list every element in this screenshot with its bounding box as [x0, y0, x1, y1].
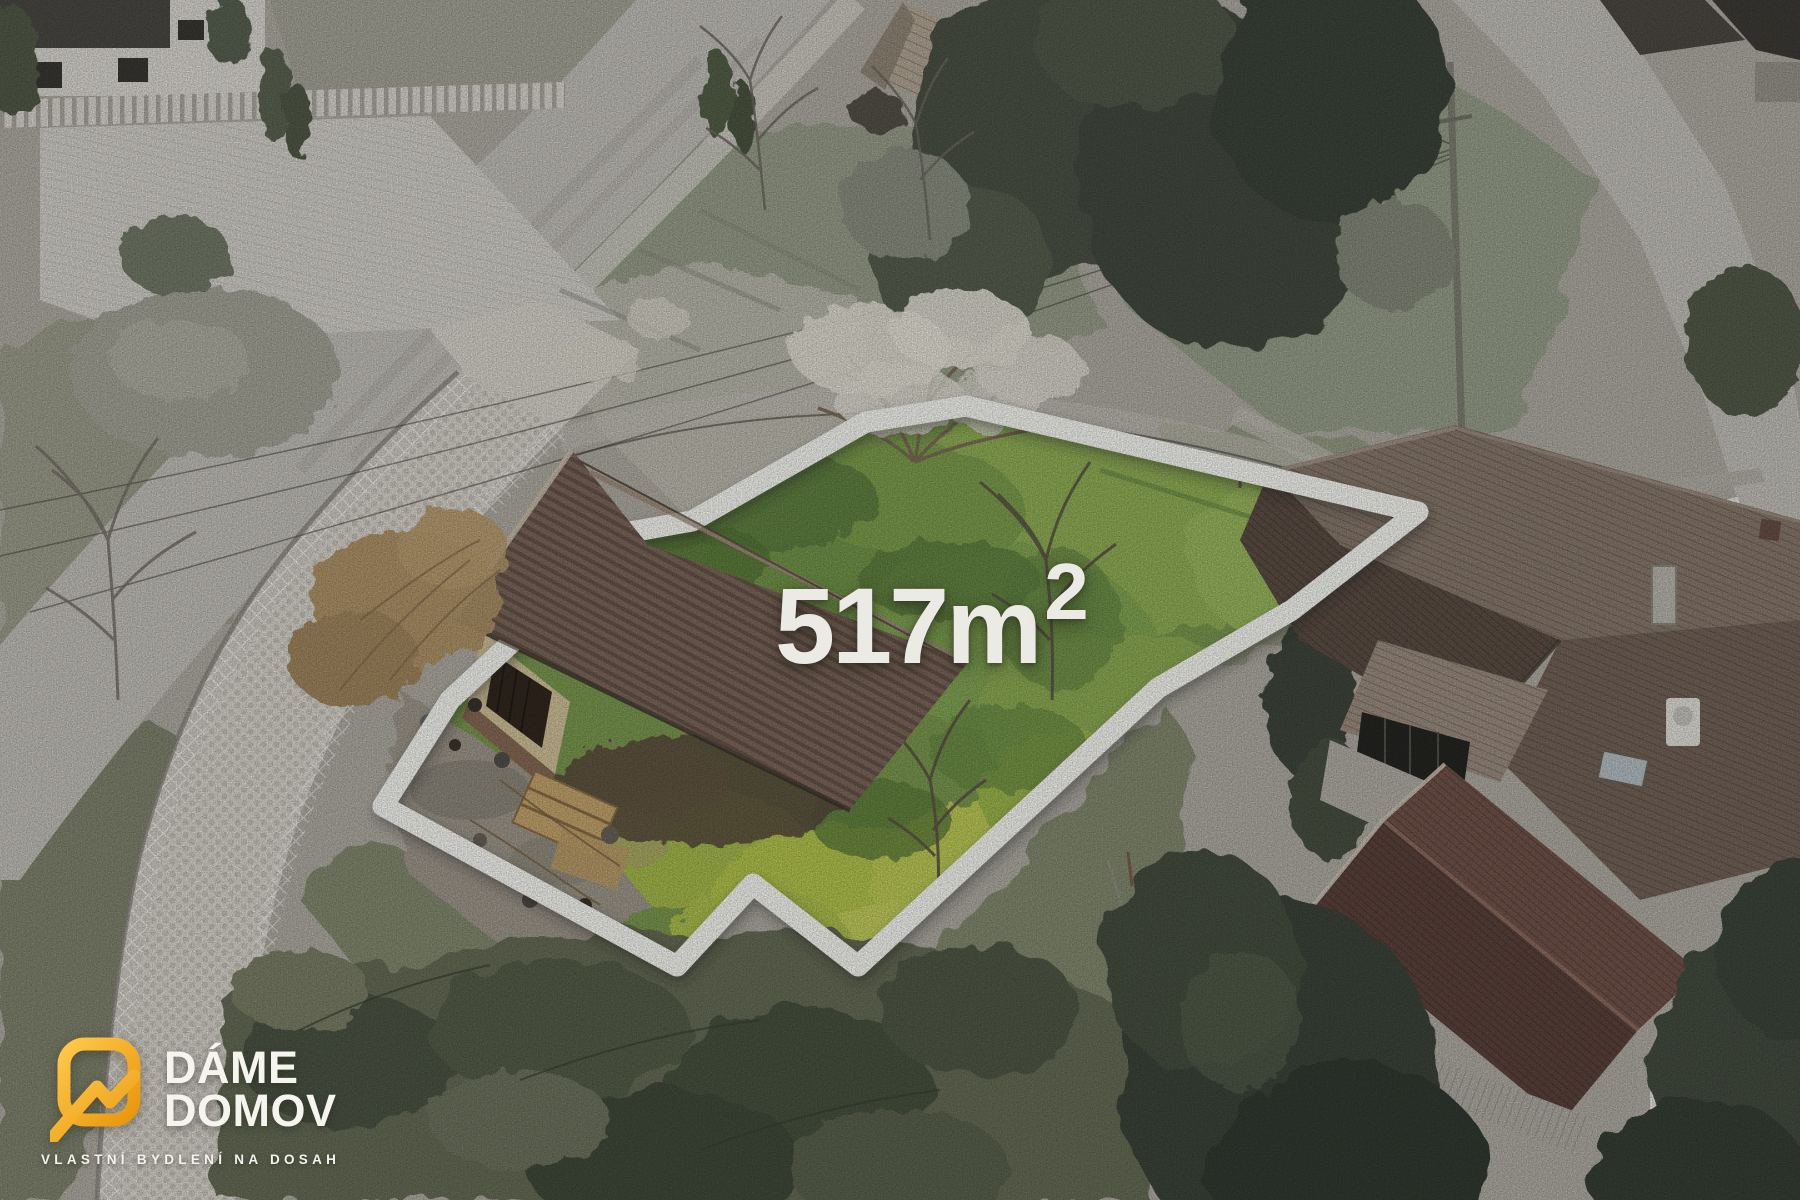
logo-tagline: VLASTNÍ BYDLENÍ NA DOSAH: [41, 1152, 340, 1167]
logo-wordmark: DÁME DOMOV: [164, 1046, 337, 1132]
area-value: 517m: [775, 572, 1039, 680]
listing-photo: 517m 2 DÁME DOMOV VLASTNÍ BYDLENÍ NA DOS…: [0, 0, 1800, 1200]
area-exponent: 2: [1044, 552, 1089, 632]
brand-logo: DÁME DOMOV: [50, 1034, 337, 1142]
logo-home-icon: [50, 1034, 146, 1142]
logo-line2: DOMOV: [164, 1089, 337, 1132]
logo-line1: DÁME: [164, 1046, 337, 1089]
area-label: 517m 2: [775, 572, 1089, 680]
